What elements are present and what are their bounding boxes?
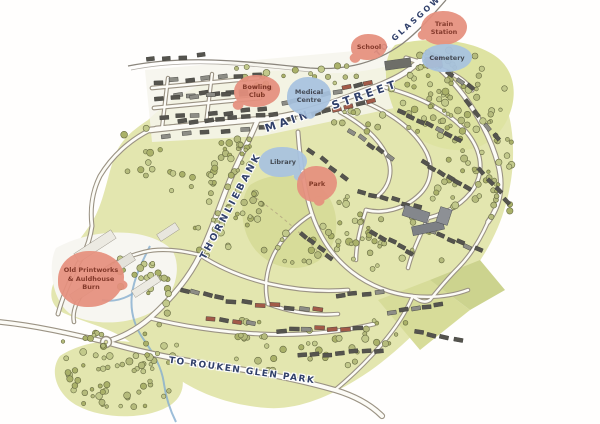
cemetery-text: Cemetery	[429, 54, 464, 62]
illustrated-town-map: Bowling Club Medical Centre School Train…	[0, 0, 600, 424]
library-text: Library	[270, 158, 296, 166]
train-station-text: Train Station	[424, 20, 464, 37]
map-artwork	[0, 0, 600, 424]
school-text: School	[357, 43, 381, 51]
park-text: Park	[309, 180, 326, 188]
old-printworks-text: Old Printworks & Auldhouse Burn	[61, 266, 121, 291]
medical-centre-text: Medical Centre	[290, 88, 328, 105]
bowling-club-text: Bowling Club	[237, 83, 277, 100]
